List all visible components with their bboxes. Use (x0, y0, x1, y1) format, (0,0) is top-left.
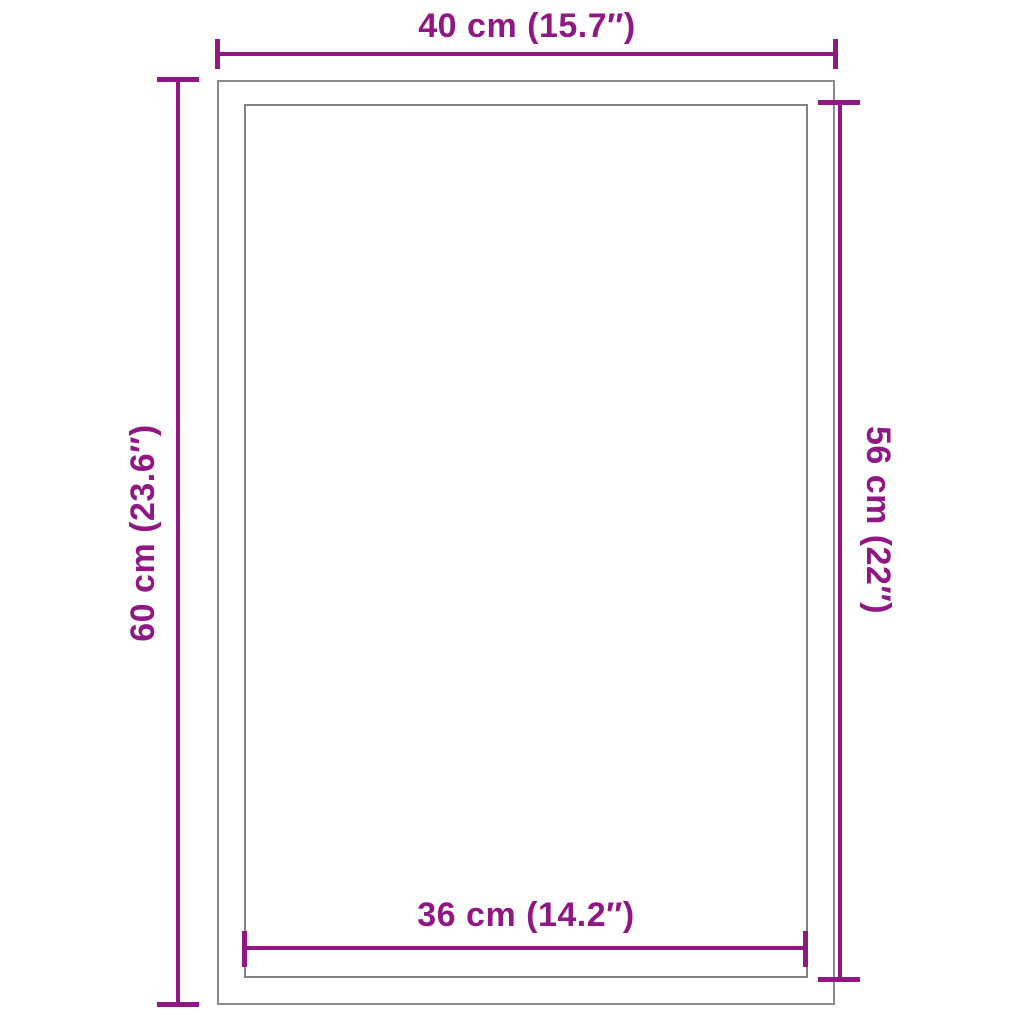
inner-rectangle-outline (244, 104, 808, 978)
top-dimension-line (217, 52, 837, 56)
bottom-dimension-line (244, 946, 808, 950)
right-dimension-tick-bottom (818, 977, 860, 982)
top-dimension-tick-right (833, 39, 838, 69)
top-dimension-label: 40 cm (15.7″) (217, 7, 837, 45)
left-dimension-tick-bottom (157, 1002, 199, 1007)
top-dimension-tick-left (215, 39, 220, 69)
bottom-dimension-tick-left (242, 931, 247, 967)
right-dimension-label: 56 cm (22″) (859, 426, 897, 614)
left-dimension-tick-top (157, 77, 199, 82)
left-dimension-label: 60 cm (23.6″) (124, 424, 162, 641)
right-dimension-tick-top (818, 100, 860, 105)
left-dimension-line (176, 79, 180, 1006)
bottom-dimension-tick-right (803, 931, 808, 967)
right-dimension-line (838, 102, 842, 981)
product-dimension-diagram: 40 cm (15.7″) 60 cm (23.6″) 56 cm (22″) … (0, 0, 1024, 1024)
bottom-dimension-label: 36 cm (14.2″) (244, 896, 808, 934)
